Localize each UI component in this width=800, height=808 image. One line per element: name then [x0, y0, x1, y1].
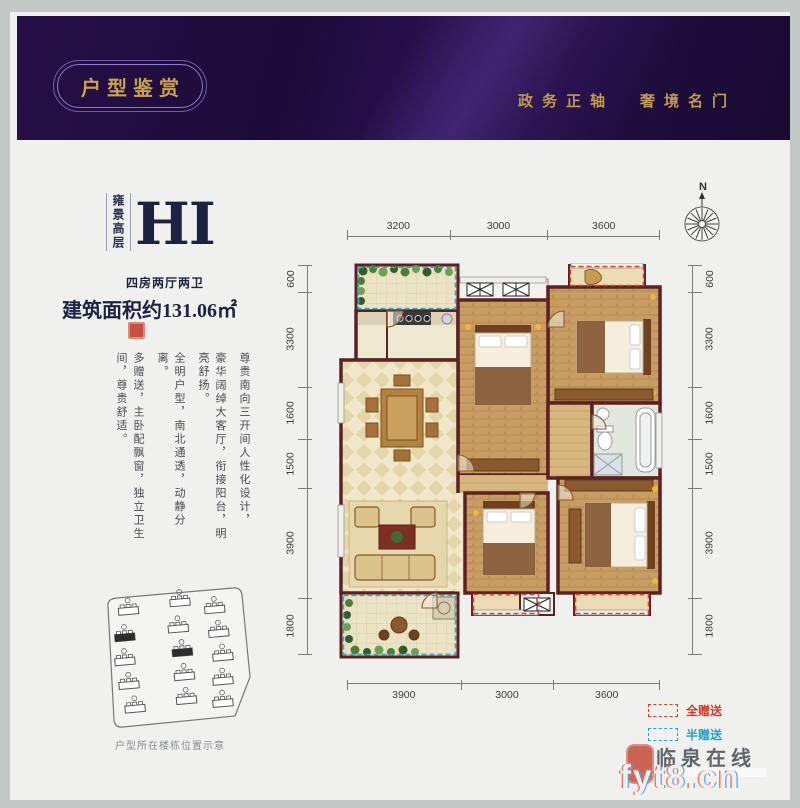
dimension-segment: 1800	[692, 598, 726, 655]
dimension-segment: 1800	[274, 598, 308, 655]
red-seal-icon	[128, 322, 145, 339]
dimension-value: 3200	[387, 220, 410, 232]
dimension-value: 3000	[495, 689, 518, 701]
banner-title: 户型鉴赏	[75, 72, 185, 101]
dimension-segment: 600	[274, 265, 308, 292]
header-banner: 户型鉴赏 政务正轴 奢境名门	[17, 16, 790, 140]
feature-text: 尊贵南向三开间人性化设计，	[235, 352, 252, 552]
title-ornate-frame: 户型鉴赏	[53, 60, 207, 112]
corridor	[548, 403, 592, 478]
compass-icon: N	[678, 180, 726, 244]
dimension-segment: 1500	[274, 439, 308, 489]
dimension-value: 3600	[592, 220, 615, 232]
gift-legend: 全赠送半赠送	[648, 702, 722, 743]
legend-item: 全赠送	[648, 702, 722, 719]
dimension-segment: 3300	[692, 292, 726, 387]
unit-area-label: 建筑面积约131.06㎡	[62, 294, 237, 323]
sofa-set	[349, 501, 447, 587]
dimension-value: 3300	[703, 328, 715, 351]
dimension-value: 3900	[284, 531, 296, 554]
dimension-value: 600	[704, 270, 716, 288]
dimension-value: 3000	[487, 220, 510, 232]
watermark: 临泉在线 fyt8.cn	[618, 738, 790, 800]
feature-text-columns: 尊贵南向三开间人性化设计，豪华阔绰大客厅，衔接阳台，明亮舒扬。全明户型，南北通透…	[105, 352, 252, 552]
hallway	[458, 475, 548, 493]
dimension-value: 3300	[284, 328, 296, 351]
feature-text: 多赠送，主卧配飘窗，独立卫生间，尊贵舒适。	[112, 352, 146, 552]
dimension-bottom: 390030003600	[347, 683, 660, 709]
dimension-value: 3900	[703, 531, 715, 554]
floor-plan	[337, 263, 663, 661]
dimension-value: 3600	[595, 689, 618, 701]
dimension-segment: 1500	[692, 439, 726, 489]
dimension-left: 60033001600150039001800	[274, 265, 308, 655]
unit-layout-label: 四房两厅两卫	[126, 274, 204, 291]
dimension-segment: 3200	[347, 211, 450, 237]
dimension-value: 1500	[284, 452, 296, 475]
dimension-segment: 3600	[553, 683, 660, 709]
dimension-value: 3900	[392, 689, 415, 701]
dimension-segment: 1600	[274, 387, 308, 439]
compass-north-label: N	[699, 181, 707, 193]
dimension-segment: 1600	[692, 387, 726, 439]
feature-text: 豪华阔绰大客厅，衔接阳台，明亮舒扬。	[194, 352, 228, 552]
dimension-segment: 3600	[547, 211, 660, 237]
legend-swatch	[648, 704, 678, 717]
dimension-value: 1800	[284, 615, 296, 638]
dimension-segment: 3900	[692, 488, 726, 598]
banner-slogan: 政务正轴 奢境名门	[518, 90, 736, 111]
dimension-segment: 3900	[347, 683, 461, 709]
dimension-value: 1800	[703, 615, 715, 638]
dimension-right: 60033001600150039001800	[692, 265, 726, 655]
dimension-segment: 3000	[461, 683, 554, 709]
dimension-top: 320030003600	[347, 211, 660, 237]
dimension-segment: 3300	[274, 292, 308, 387]
dimension-value: 1600	[703, 401, 715, 424]
slogan-right: 奢境名门	[640, 90, 736, 111]
dimension-segment: 600	[692, 265, 726, 292]
unit-code: HI	[135, 193, 215, 255]
page-background: 户型鉴赏 政务正轴 奢境名门 雍景高层 HI 四房两厅两卫 建筑面积约131.0…	[0, 0, 800, 808]
dimension-value: 1500	[703, 452, 715, 475]
site-plan-caption: 户型所在楼栋位置示意	[85, 737, 255, 752]
dimension-value: 600	[285, 270, 297, 288]
feature-text: 全明户型，南北通透，动静分离。	[153, 352, 187, 552]
unit-series-label: 雍景高层	[106, 193, 131, 251]
poster-sheet: 户型鉴赏 政务正轴 奢境名门 雍景高层 HI 四房两厅两卫 建筑面积约131.0…	[10, 12, 790, 800]
legend-label: 全赠送	[686, 702, 722, 719]
watermark-logo: fyt8.cn	[620, 758, 740, 796]
dimension-segment: 3900	[274, 488, 308, 598]
dimension-segment: 3000	[450, 211, 548, 237]
site-plan-sketch	[85, 585, 255, 735]
slogan-left: 政务正轴	[518, 90, 614, 111]
dimension-value: 1600	[284, 401, 296, 424]
unit-header: 雍景高层 HI	[106, 193, 215, 255]
